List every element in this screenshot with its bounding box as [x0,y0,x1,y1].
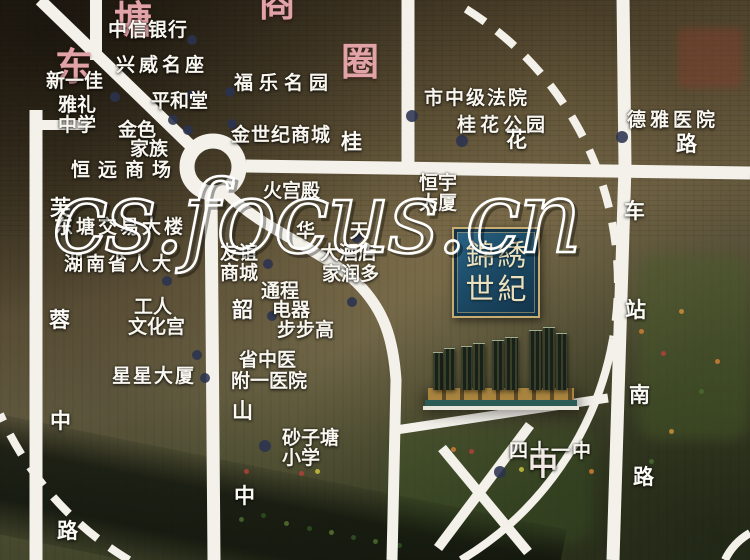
poi-dots [110,35,628,478]
logo-char: 世 [465,275,494,304]
poi-dot [267,311,277,321]
road-shaoshan-middle [211,193,214,560]
poi-dot [352,233,362,243]
road-southeast-curve [226,193,396,560]
poi-dot [200,373,210,383]
road-cross-b [442,448,528,552]
poi-dot [168,115,178,125]
road-corner-arc [725,533,750,560]
poi-dot [162,276,172,286]
poi-dot [227,119,237,129]
poi-dot [225,87,235,97]
poi-dot [110,92,120,102]
poi-dot [183,125,193,135]
poi-dot [494,466,506,478]
poi-dot [406,110,418,122]
road-cross-a [438,425,530,548]
ring-arc-solid-east [461,339,613,560]
poi-dot [347,297,357,307]
poi-dot [187,35,197,45]
ring-arc-dashed-southwest [0,414,129,560]
poi-dot [616,131,628,143]
road-guihua [246,166,750,173]
logo-char: 紀 [497,275,526,304]
poi-dot [456,135,468,147]
road-network [0,0,750,560]
logo-char: 錦 [465,241,494,270]
dongtang-roundabout [187,141,239,193]
location-map: 塘东商圈中信银行兴威名座新一佳雅礼 中学平和堂金色家族恒远商场福乐名园金世纪商城… [0,0,750,560]
poi-dot [187,90,197,100]
project-logo: 錦 綉 世 紀 [452,227,540,318]
poi-dot [192,350,202,360]
poi-dot [263,259,273,269]
road-project-front [396,398,608,430]
poi-dot [259,440,271,452]
logo-char: 綉 [497,241,526,270]
